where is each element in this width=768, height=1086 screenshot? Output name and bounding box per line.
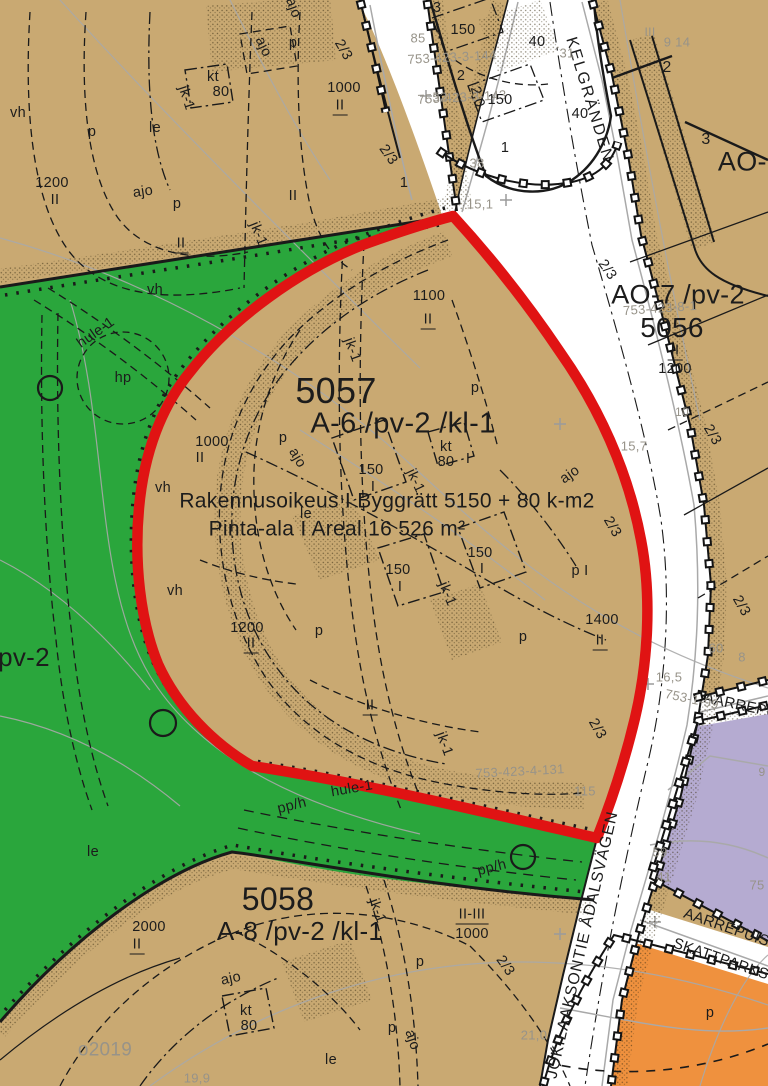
- map-label: ajo: [252, 35, 274, 59]
- map-label: jk-1: [436, 580, 459, 608]
- zoning-map: 5057A-6 /pv-2 /kl-1Rakennusoikeus I Bygg…: [0, 0, 768, 1086]
- map-label: kt: [240, 1004, 252, 1019]
- map-label: le: [325, 1053, 337, 1068]
- map-label: 1200: [35, 176, 68, 191]
- map-label: Rakennusoikeus I Byggrätt 5150 + 80 k-m2: [179, 491, 594, 512]
- map-label: p: [315, 624, 323, 639]
- map-label: jk-1: [341, 336, 363, 364]
- map-label: Pinta-ala I Areal 16 526 m²: [209, 519, 466, 540]
- map-label: II: [333, 99, 348, 116]
- map-label: jk-1: [433, 730, 455, 758]
- map-label: 1400: [585, 613, 618, 628]
- map-label: 1100: [413, 289, 445, 304]
- map-label: A-8 /pv-2 /kl-1: [217, 918, 383, 944]
- map-label: 2: [457, 69, 465, 84]
- map-label: 2/3: [376, 142, 400, 168]
- map-label: 38: [469, 157, 484, 170]
- map-label: 31: [559, 47, 574, 60]
- map-label: I: [371, 480, 375, 495]
- map-label: 2/3: [331, 37, 354, 62]
- map-label: p: [706, 1006, 714, 1021]
- map-label: I: [480, 562, 484, 577]
- map-label: kt: [207, 70, 219, 85]
- map-label: le: [300, 507, 312, 522]
- map-label: hule-1: [330, 778, 374, 800]
- map-label: 2000: [132, 920, 165, 935]
- map-label: p I: [571, 564, 588, 579]
- map-label: 150: [358, 463, 383, 478]
- map-label: 75: [749, 879, 764, 892]
- map-label: 52: [432, 91, 447, 104]
- map-label: II: [244, 637, 259, 654]
- map-label: 41: [656, 871, 671, 884]
- map-label: 2/3: [600, 514, 623, 539]
- map-label: 2/3: [493, 953, 517, 979]
- map-label: 60: [708, 642, 723, 655]
- map-label: I: [398, 580, 402, 595]
- map-label: 80: [438, 455, 455, 470]
- map-label: o2019: [78, 1041, 132, 1060]
- map-label: 2/3: [585, 716, 608, 741]
- map-label: 59: [652, 846, 667, 859]
- map-label: A-6 /pv-2 /kl-1: [311, 410, 496, 439]
- map-label: 150: [467, 546, 492, 561]
- map-label: II: [130, 938, 145, 955]
- map-label: 85: [410, 32, 425, 45]
- map-label: 1200: [230, 621, 263, 636]
- map-label: 40: [572, 107, 589, 122]
- map-label: p: [289, 36, 297, 51]
- map-label: ajo: [283, 0, 304, 20]
- map-label: 150: [385, 563, 410, 578]
- map-label: 80: [213, 85, 230, 100]
- map-label: 150: [450, 23, 475, 38]
- map-label: 40: [529, 35, 546, 50]
- map-label: 15,1: [467, 198, 494, 211]
- map-label: 2/3: [729, 593, 752, 618]
- map-label: p: [388, 1021, 396, 1036]
- map-label: 21,0: [521, 1029, 548, 1042]
- map-label: 5057: [295, 373, 376, 409]
- map-label: p: [88, 125, 96, 140]
- map-label: kt: [440, 440, 452, 455]
- map-label: 15,7: [621, 440, 648, 453]
- map-label: II: [363, 699, 378, 716]
- map-label: 1: [501, 141, 509, 156]
- map-label: II: [289, 189, 298, 204]
- map-label: 150: [487, 93, 512, 108]
- map-label: p: [173, 197, 181, 212]
- map-label: 753-423-4-131: [475, 762, 565, 780]
- map-label: 1200: [658, 362, 691, 377]
- map-label: le: [87, 845, 99, 860]
- map-label: 1000: [327, 81, 360, 96]
- map-label: 115: [574, 785, 596, 798]
- map-label: p: [519, 630, 527, 645]
- map-label: p: [471, 381, 479, 396]
- map-label: hule-1: [75, 315, 118, 351]
- map-labels-layer: 5057A-6 /pv-2 /kl-1Rakennusoikeus I Bygg…: [0, 0, 768, 1086]
- map-label: p: [279, 431, 287, 446]
- map-label: 16,5: [656, 671, 683, 684]
- map-label: pv-2: [0, 644, 50, 670]
- map-label: hp: [115, 371, 132, 386]
- map-label: 2/3: [700, 422, 723, 447]
- map-label: AO-1: [718, 149, 768, 176]
- map-label: 9 14: [664, 36, 691, 49]
- map-label: 80: [241, 1019, 258, 1034]
- map-label: ajo: [558, 463, 583, 486]
- map-label: II: [51, 193, 60, 208]
- map-label: II: [421, 313, 436, 330]
- map-label: 1000: [455, 927, 488, 942]
- street-name: JOKILAAKSONTIE ÅDALSVÄGEN: [544, 810, 621, 1081]
- map-label: vh: [147, 283, 163, 298]
- map-label: 5056: [640, 314, 704, 342]
- map-label: 1: [400, 176, 408, 191]
- map-label: III: [645, 26, 656, 38]
- map-label: II: [196, 451, 205, 466]
- map-label: 19,9: [184, 1072, 211, 1085]
- map-label: II: [174, 237, 189, 254]
- map-label: II-III: [456, 908, 489, 925]
- map-label: jk-1: [175, 84, 196, 112]
- map-label: vh: [167, 584, 183, 599]
- map-label: pp/h: [276, 795, 308, 816]
- map-label: jk-1: [247, 220, 270, 248]
- map-label: pp/h: [476, 857, 508, 878]
- map-label: II: [668, 344, 683, 361]
- map-label: p: [416, 955, 424, 970]
- map-label: vh: [155, 481, 171, 496]
- map-label: 753-423-3-144: [407, 48, 497, 66]
- map-label: 3: [433, 1, 441, 16]
- map-label: 9: [759, 766, 766, 778]
- map-label: 2: [662, 60, 671, 76]
- map-label: ajo: [132, 183, 154, 200]
- map-label: 5058: [242, 883, 314, 915]
- map-label: II: [593, 634, 608, 651]
- map-label: 3: [701, 132, 710, 148]
- map-label: I: [466, 452, 470, 467]
- map-label: ajo: [286, 446, 309, 471]
- map-label: 8: [738, 651, 746, 664]
- map-label: le: [149, 121, 161, 136]
- map-label: ajo: [220, 970, 243, 988]
- map-label: vh: [10, 106, 26, 121]
- map-label: 10: [675, 406, 689, 418]
- map-label: 1000: [195, 435, 228, 450]
- map-label: ajo: [402, 1028, 422, 1052]
